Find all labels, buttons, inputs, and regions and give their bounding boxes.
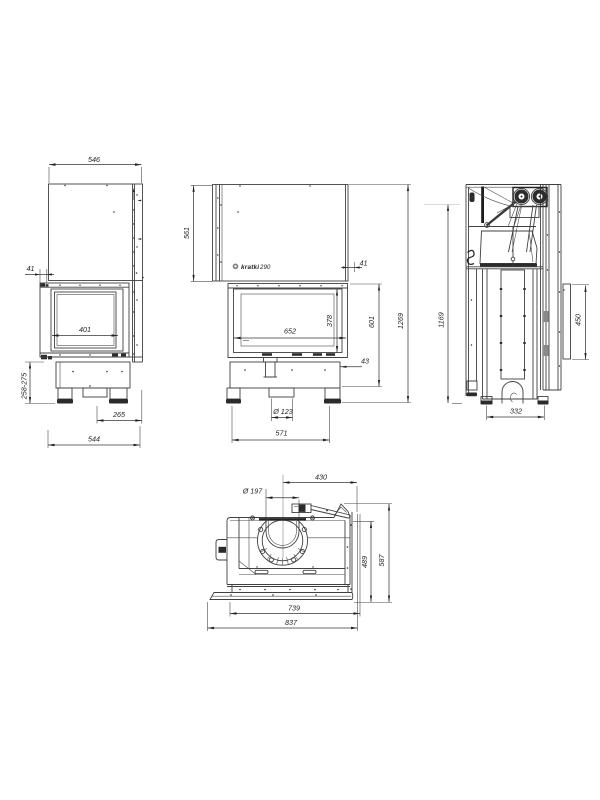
svg-text:41: 41 <box>360 259 368 268</box>
svg-text:489: 489 <box>360 556 369 568</box>
svg-text:265: 265 <box>112 410 126 419</box>
svg-text:332: 332 <box>510 407 522 416</box>
svg-text:1269: 1269 <box>396 313 405 329</box>
svg-text:290: 290 <box>259 264 271 271</box>
svg-text:Ø 197: Ø 197 <box>242 487 264 496</box>
svg-text:601: 601 <box>367 316 376 328</box>
svg-text:378: 378 <box>325 315 334 327</box>
svg-text:837: 837 <box>285 618 298 627</box>
svg-text:430: 430 <box>315 473 327 482</box>
svg-text:401: 401 <box>79 325 91 334</box>
svg-text:587: 587 <box>377 554 386 567</box>
svg-text:450: 450 <box>574 314 583 326</box>
svg-text:258-275: 258-275 <box>20 372 29 400</box>
svg-text:Ø 123: Ø 123 <box>272 407 293 416</box>
svg-text:544: 544 <box>88 435 100 444</box>
svg-text:43: 43 <box>361 357 369 366</box>
svg-text:561: 561 <box>182 227 191 239</box>
svg-text:41: 41 <box>27 264 35 273</box>
svg-text:546: 546 <box>88 155 100 164</box>
svg-text:652: 652 <box>284 327 296 336</box>
svg-text:739: 739 <box>288 604 300 613</box>
svg-text:1169: 1169 <box>437 312 446 327</box>
svg-text:571: 571 <box>276 429 288 438</box>
svg-text:kratki: kratki <box>241 264 259 271</box>
